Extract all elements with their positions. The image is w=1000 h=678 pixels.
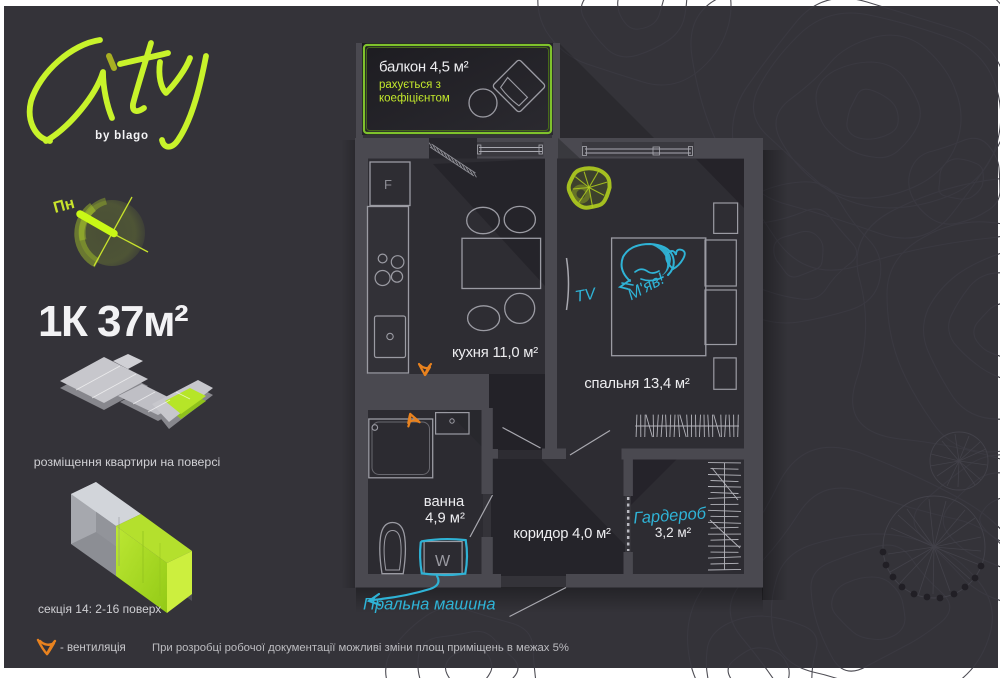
svg-text:F: F xyxy=(384,177,392,192)
svg-text:4,9 м²: 4,9 м² xyxy=(425,511,465,527)
svg-text:спальня 13,4 м²: спальня 13,4 м² xyxy=(584,376,690,392)
svg-text:Пральна машина: Пральна машина xyxy=(363,596,496,614)
svg-text:При розробці робочої документа: При розробці робочої документації можлив… xyxy=(152,642,569,654)
svg-text:W: W xyxy=(435,553,451,570)
svg-text:секція 14: 2-16 поверх: секція 14: 2-16 поверх xyxy=(38,602,161,616)
svg-text:ванна: ванна xyxy=(424,494,465,510)
svg-text:- вентиляція: - вентиляція xyxy=(60,642,126,654)
svg-text:рахується з: рахується з xyxy=(379,79,441,91)
svg-text:коридор 4,0 м²: коридор 4,0 м² xyxy=(513,526,611,542)
svg-text:3,2 м²: 3,2 м² xyxy=(655,525,692,540)
svg-text:коефіцієнтом: коефіцієнтом xyxy=(379,93,450,105)
svg-text:балкон 4,5 м²: балкон 4,5 м² xyxy=(379,59,469,76)
svg-text:розміщення квартири на поверсі: розміщення квартири на поверсі xyxy=(34,455,221,469)
svg-text:by blago: by blago xyxy=(95,130,149,142)
svg-text:1К 37м²: 1К 37м² xyxy=(38,297,188,346)
svg-text:кухня 11,0 м²: кухня 11,0 м² xyxy=(452,345,538,361)
